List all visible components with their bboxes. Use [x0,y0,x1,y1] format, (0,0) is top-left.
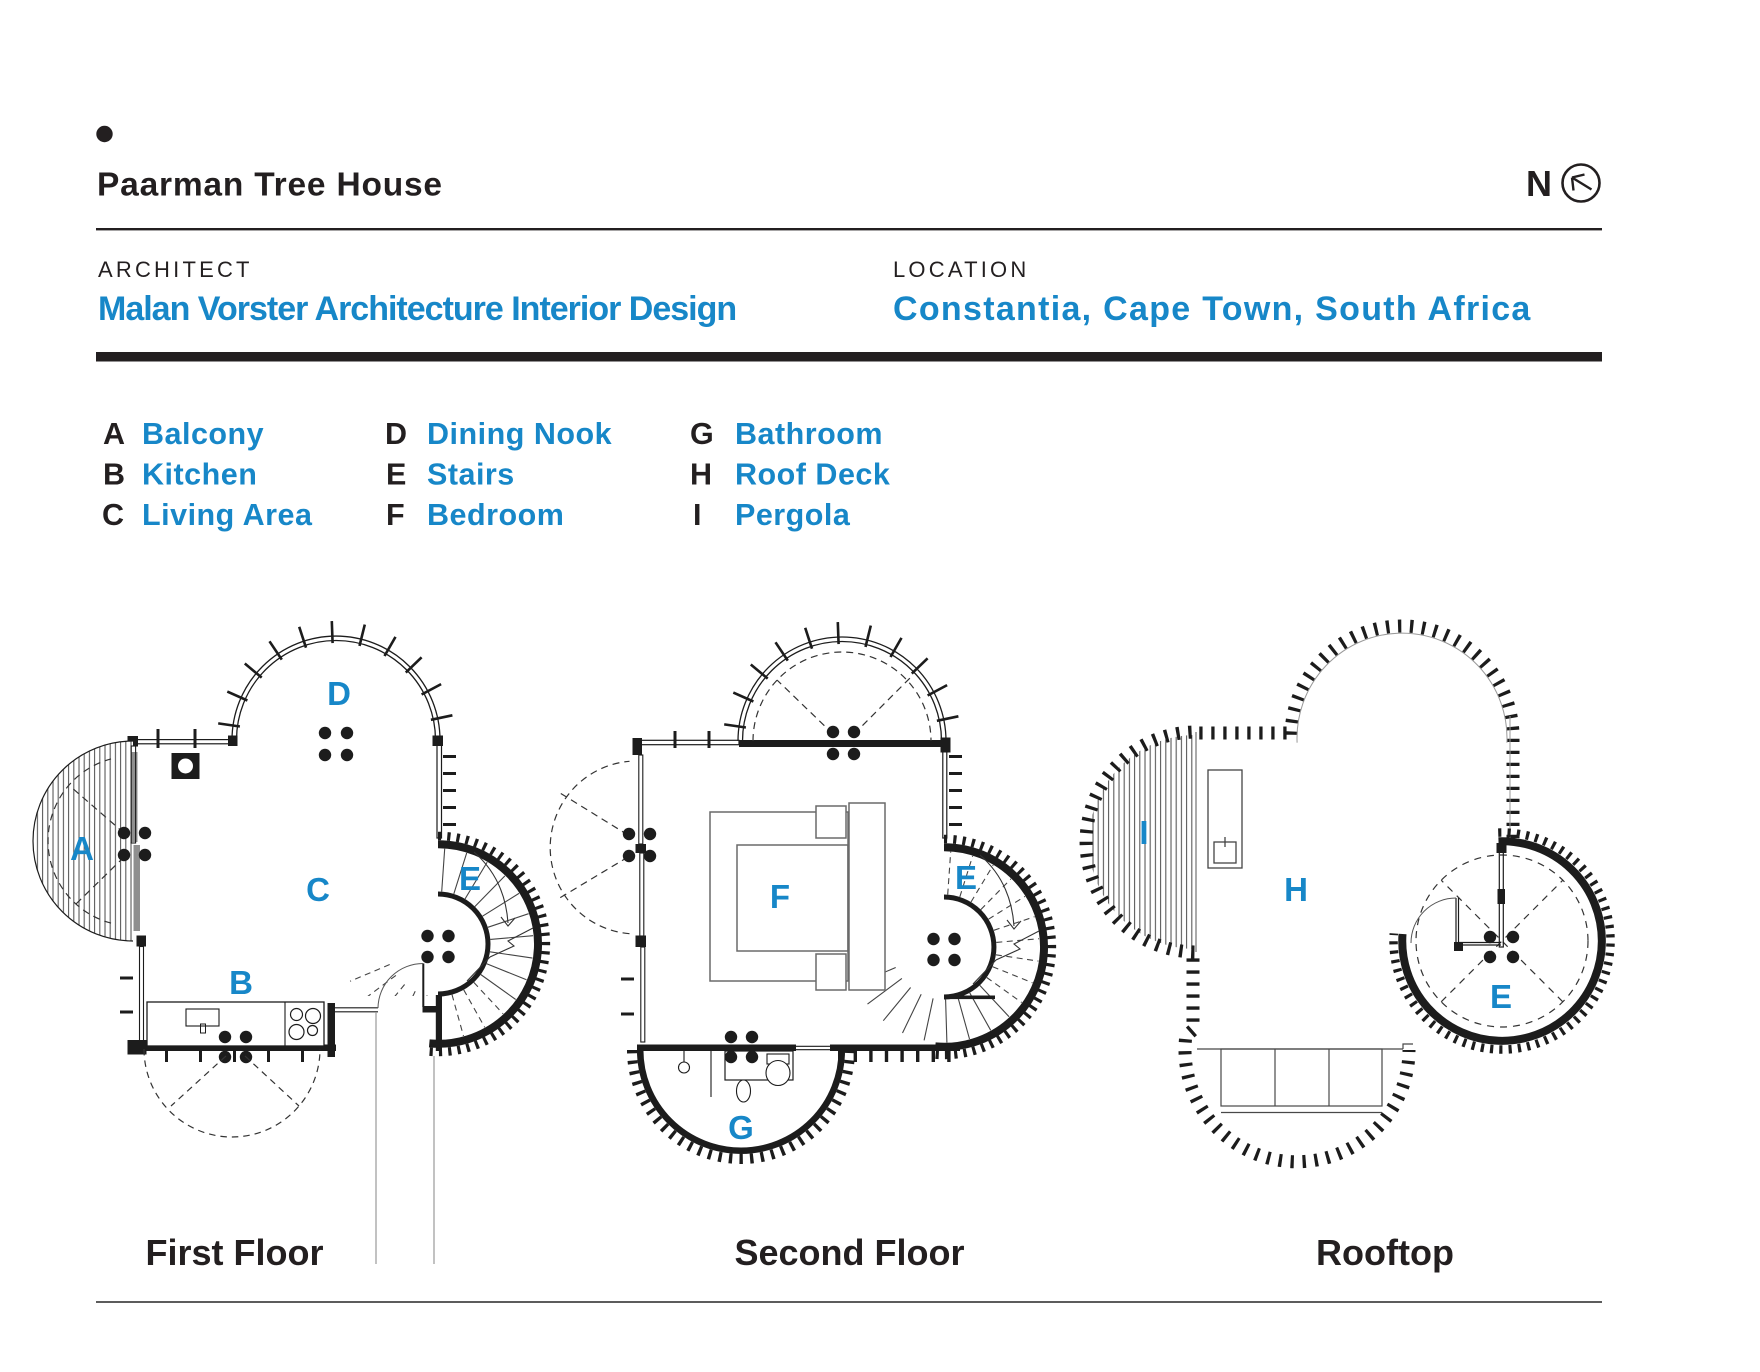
svg-text:Roof Deck: Roof Deck [735,458,890,492]
svg-text:Stairs: Stairs [427,458,515,492]
svg-text:N: N [1526,163,1552,204]
svg-text:Second Floor: Second Floor [734,1232,964,1273]
svg-text:F: F [386,498,405,532]
svg-text:ARCHITECT: ARCHITECT [98,257,253,282]
svg-text:Pergola: Pergola [735,498,851,532]
svg-text:C: C [306,871,330,908]
svg-text:D: D [327,675,351,712]
svg-text:C: C [102,498,124,532]
svg-text:Malan Vorster Architecture Int: Malan Vorster Architecture Interior Desi… [98,290,736,328]
svg-text:F: F [770,878,790,915]
svg-text:D: D [385,417,407,451]
svg-text:G: G [728,1109,754,1146]
svg-text:B: B [103,458,125,492]
svg-text:H: H [1284,871,1308,908]
svg-text:H: H [690,458,712,492]
svg-text:Constantia, Cape Town, South A: Constantia, Cape Town, South Africa [893,290,1532,328]
svg-text:I: I [1139,814,1148,851]
svg-text:E: E [955,859,977,896]
svg-text:LOCATION: LOCATION [893,257,1029,282]
svg-text:Rooftop: Rooftop [1316,1232,1454,1273]
svg-text:E: E [459,860,481,897]
svg-text:E: E [1490,978,1512,1015]
svg-text:Bathroom: Bathroom [735,417,883,451]
svg-text:Bedroom: Bedroom [427,498,564,532]
svg-text:G: G [690,417,714,451]
svg-text:Balcony: Balcony [142,417,264,451]
svg-text:Living Area: Living Area [142,498,313,532]
svg-text:B: B [229,964,253,1001]
svg-text:Dining Nook: Dining Nook [427,417,612,451]
svg-text:Paarman Tree House: Paarman Tree House [97,167,443,204]
svg-text:Kitchen: Kitchen [142,458,257,492]
svg-text:A: A [103,417,125,451]
svg-text:E: E [386,458,406,492]
svg-text:First Floor: First Floor [146,1232,324,1273]
svg-text:A: A [70,830,94,867]
svg-text:I: I [693,498,701,532]
